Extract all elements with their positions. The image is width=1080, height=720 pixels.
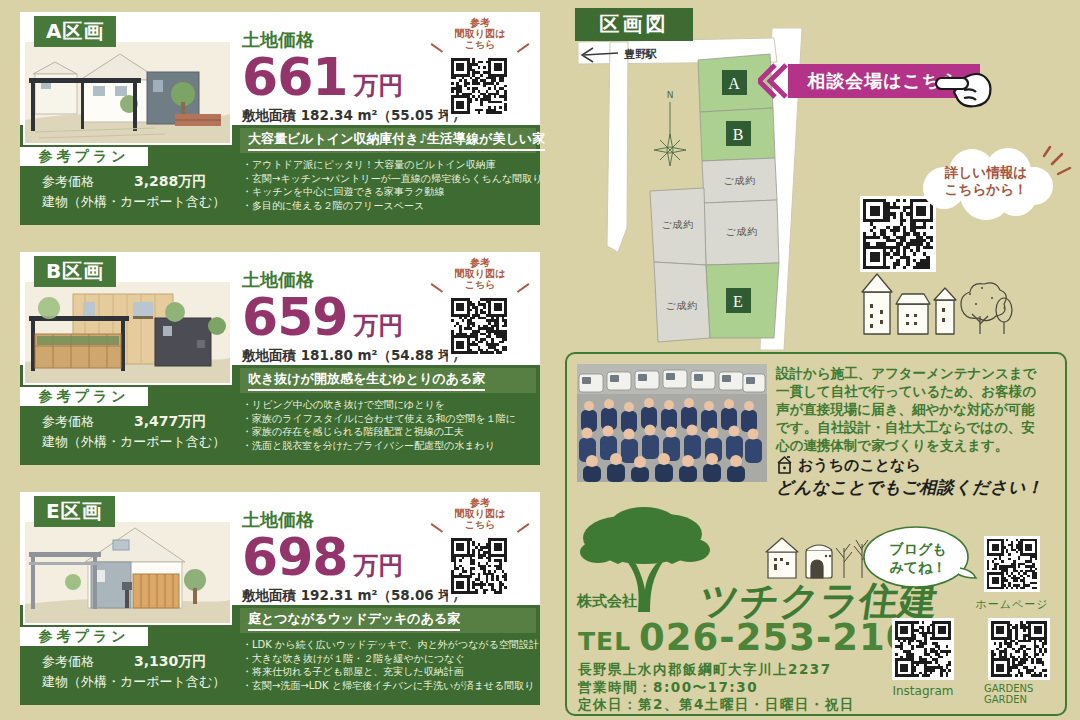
callout-line-2: どんなことでもご相談ください！ [776,476,1066,499]
plot-card-e: E区画 [20,492,540,705]
land-price-unit: 万円 [354,312,404,340]
feature-list: ・LDK から続く広いウッドデッキで、内と外がつながる空間設計 ・大きな吹き抜け… [242,638,536,692]
plot-badge-e: E区画 [34,496,115,527]
site-area: 敷地面積 181.80 m²（54.88 坪） [242,347,442,365]
instagram-qr-label: Instagram [878,684,968,698]
feature-item: ・家族の存在を感じられる階段配置と視線の工夫 [242,425,536,439]
map-section-title: 区画図 [575,8,693,41]
reference-price-value: 3,477万円 [134,413,206,431]
catchphrase-text: 庭とつながるウッドデッキのある家 [248,610,460,631]
staff-photo [577,364,767,482]
floorplan-qr-code-e[interactable] [448,535,510,597]
north-label: N [667,90,674,100]
land-price-value: 698 [242,534,348,580]
building-note: 建物（外構・カーポート含む） [42,673,225,691]
feature-item: ・洗面と脱衣室を分けたプライバシー配慮型の水まわり [242,439,536,453]
tel-label: TEL [578,627,631,656]
company-description: 設計から施工、アフターメンテナンスまで 一貫して自社で行っているため、お客様の … [776,364,1064,454]
land-price-unit: 万円 [354,552,404,580]
plot-card-a: A区画 [20,12,540,225]
floorplan-qr-note: 参考 間取り図は こちら [434,497,526,530]
company-name-prefix: 株式会社 [577,592,637,611]
catchphrase-bar: 庭とつながるウッドデッキのある家 [240,608,536,633]
floorplan-qr-note: 参考 間取り図は こちら [434,17,526,50]
reference-price-value: 3,288万円 [134,173,206,191]
company-address: 長野県上水内郡飯綱町大字川上2237 営業時間：8:00〜17:30 定休日：第… [578,661,855,714]
flyer-page: A区画 [0,0,1080,720]
sold-label: ご成約 [661,219,694,230]
feature-item: ・将来仕切れる子ども部屋と、充実した収納計画 [242,665,536,679]
feature-item: ・玄関→洗面→LDK と帰宅後イチバンに手洗いが済ませる間取り [242,679,536,693]
plot-b-label: B [733,126,744,143]
reference-plan-label: 参考プラン [20,387,148,406]
homepage-qr-label: ホームページ [958,597,1066,612]
catchphrase-text: 大容量ビルトイン収納庫付き♪生活導線が美しい家 [248,130,545,151]
reference-price-label: 参考価格 [42,653,134,671]
gardens-garden-qr-label: GARDENS GARDEN [980,683,1062,705]
north-compass-icon [654,102,686,166]
info-bubble [916,142,1072,222]
sold-label: ご成約 [725,226,758,237]
phone-row: TEL 026-253-2109 [578,616,939,659]
feature-list: ・アウトドア派にピッタリ！大容量のビルトイン収納庫 ・玄関→キッチン→パントリー… [242,158,536,212]
land-price-value: 661 [242,54,348,100]
floorplan-qr-code-a[interactable] [448,55,510,117]
feature-item: ・アウトドア派にピッタリ！大容量のビルトイン収納庫 [242,158,536,172]
building-note: 建物（外構・カーポート含む） [42,193,225,211]
floorplan-qr-note: 参考 間取り図は こちら [434,257,526,290]
chevron-left-icon [758,62,790,100]
feature-item: ・キッチンを中心に回遊できる家事ラク動線 [242,185,536,199]
house-illustration-a [25,42,230,143]
feature-item: ・大きな吹き抜けが１階・２階を緩やかにつなぐ [242,652,536,666]
house-illustration-e [25,522,230,623]
house-illustration-b [25,282,230,383]
station-label: 豊野駅 [624,48,658,61]
feature-item: ・リビング中心の吹き抜けで空間にゆとりを [242,398,536,412]
house-sketch-icons [764,534,874,582]
catchphrase-bar: 吹き抜けが開放感を生むゆとりのある家 [240,368,536,393]
sold-label: ご成約 [665,300,698,311]
pointing-hand-icon [934,64,996,116]
houses-trees-sketch [858,270,1013,338]
callout-line-1: おうちのことなら [776,455,1066,475]
floorplan-qr-code-b[interactable] [448,295,510,357]
feature-item: ・家族のライフスタイルに合わせて使える和の空間を１階に [242,412,536,426]
instagram-qr-code[interactable] [892,618,954,680]
feature-item: ・多目的に使える２階のフリースペース [242,199,536,213]
house-icon [776,455,793,475]
building-note: 建物（外構・カーポート含む） [42,433,225,451]
site-area: 敷地面積 182.34 m²（55.05 坪） [242,107,442,125]
reference-price-label: 参考価格 [42,413,134,431]
blog-bubble [860,524,978,594]
homepage-qr-code[interactable] [984,536,1040,592]
catchphrase-bar: 大容量ビルトイン収納庫付き♪生活導線が美しい家 [240,128,536,153]
plot-e-label: E [733,293,743,310]
plot-a-label: A [728,75,740,92]
land-price-unit: 万円 [354,72,404,100]
plot-card-b: B区画 [20,252,540,465]
gardens-garden-qr-code[interactable] [988,618,1050,680]
reference-price-label: 参考価格 [42,173,134,191]
reference-plan-label: 参考プラン [20,627,148,646]
land-price-value: 659 [242,294,348,340]
feature-item: ・玄関→キッチン→パントリーが一直線の帰宅後らくちんな間取り [242,172,536,186]
catchphrase-text: 吹き抜けが開放感を生むゆとりのある家 [248,370,485,391]
site-area: 敷地面積 192.31 m²（58.06 坪） [242,587,442,605]
reference-price-value: 3,130万円 [134,653,206,671]
feature-list: ・リビング中心の吹き抜けで空間にゆとりを ・家族のライフスタイルに合わせて使える… [242,398,536,452]
plot-badge-a: A区画 [34,16,116,47]
reference-plan-label: 参考プラン [20,147,148,166]
feature-item: ・LDK から続く広いウッドデッキで、内と外がつながる空間設計 [242,638,536,652]
sold-label: ご成約 [723,175,756,186]
plot-badge-b: B区画 [34,256,116,287]
